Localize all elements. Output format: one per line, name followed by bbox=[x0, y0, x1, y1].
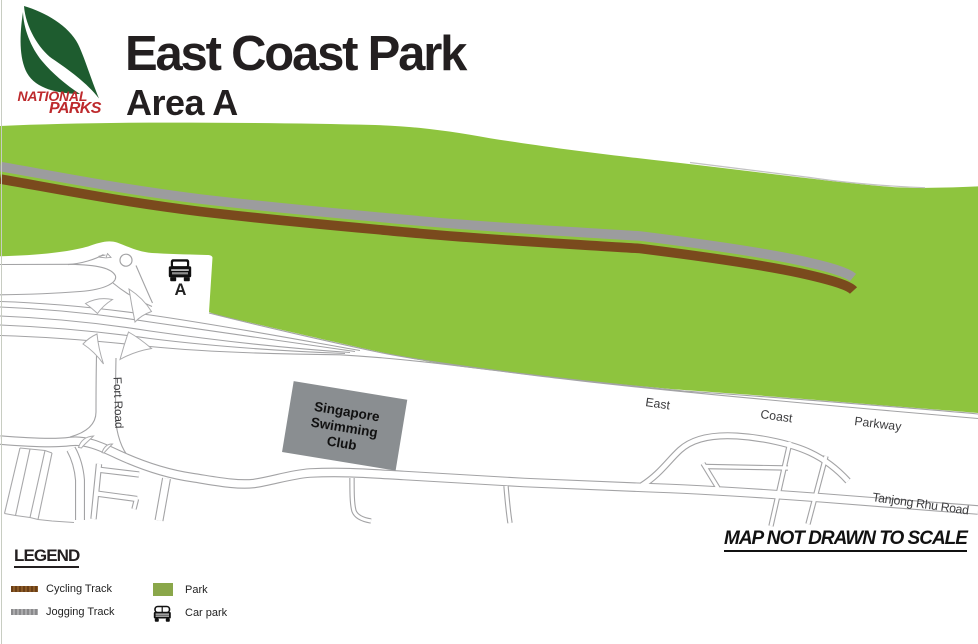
svg-text:Tanjong Rhu Road: Tanjong Rhu Road bbox=[872, 490, 971, 517]
svg-text:A: A bbox=[175, 281, 187, 299]
svg-text:Fort Road: Fort Road bbox=[111, 377, 126, 429]
svg-text:Coast: Coast bbox=[760, 407, 794, 425]
svg-text:East: East bbox=[645, 395, 672, 412]
svg-text:Parkway: Parkway bbox=[854, 414, 903, 434]
